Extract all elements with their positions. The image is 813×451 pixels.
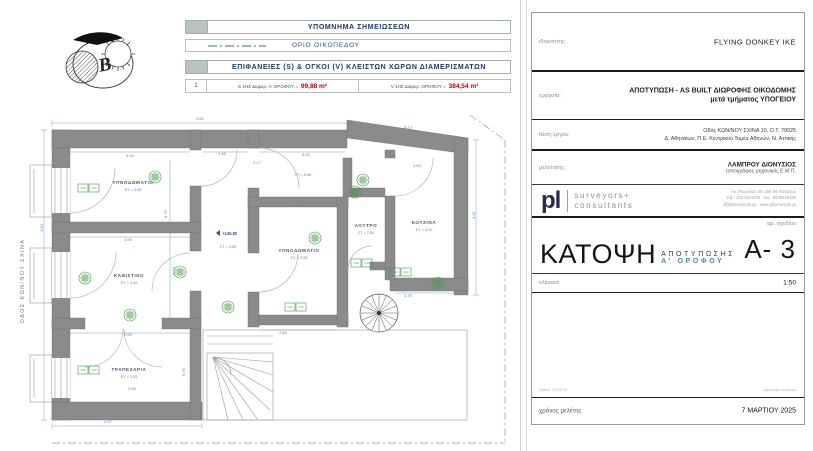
work-value: ΑΠΟΤΥΠΩΣΗ - AS BUILT ΔΙΩΡΟΦΗΣ ΟΙΚΟΔΟΜΗΣ … [629,86,796,105]
title-block-spacer [532,293,804,383]
svg-text:2.20: 2.20 [364,261,370,265]
location-label: θέση έργου: [539,132,570,138]
dimension-label: 1.40 [218,151,227,156]
level-value: +135.80 [222,231,238,236]
legend: ΥΠΟΜΝΗΜΑ ΣΗΜΕΙΩΣΕΩΝ ΟΡΙΟ ΟΙΚΟΠΕΔΟΥ ΕΠΙΦΑ… [185,20,511,93]
ref-left: Datum: ΕΓΣΑ '87 [539,388,568,392]
scale-row: κλίμακα 1:50 [532,274,804,293]
dimension-label: 2.98 [292,203,301,208]
opening-tag: 0.902.20 [78,184,99,192]
legend-notes-header: ΥΠΟΜΝΗΜΑ ΣΗΜΕΙΩΣΕΩΝ [185,20,511,34]
svg-text:2.20: 2.20 [403,270,409,274]
spiral-staircase [360,294,398,332]
designer-label: μελετητής: [539,165,566,171]
owner-value: FLYING DONKEY IKE [714,37,796,46]
dimension-label: 3.96 [128,386,137,391]
dimension-label: 3.94 [126,153,135,158]
boundary-line-sample [208,44,266,48]
location-value: Οδός ΚΩΝ/ΝΟΥ ΣΧΙΝΑ 10, Ο.Τ. 79025 Δ. Αθη… [665,126,797,142]
logo-words: surveyors+ consultants [574,191,633,211]
room-name: ΥΠΝΟΔΩΜΑΤΙΟ [278,248,319,253]
title-block: ιδιοκτήτης: FLYING DONKEY IKE εργασία: Α… [531,12,805,425]
svg-text:2.20: 2.20 [91,368,97,372]
walls [52,120,468,420]
plant-marker-icon [79,272,91,284]
windows [52,168,70,398]
plant-marker-icon [309,232,321,244]
opening-tag: 0.902.20 [351,259,372,267]
room-height: ΕΥ = 3.20 [416,228,433,232]
legend-areas-header: ΕΠΙΦΑΝΕΙΕΣ (S) & ΟΓΚΟΙ (V) ΚΛΕΙΣΤΩΝ ΧΩΡΩ… [185,60,511,74]
work-row: εργασία: ΑΠΟΤΥΠΩΣΗ - AS BUILT ΔΙΩΡΟΦΗΣ Ο… [532,72,804,120]
room-height: ΕΥ = 3.05 [121,375,138,379]
opening-tag: 0.902.20 [285,303,306,311]
legend-values-row: 1 S 1ΗΣ Διαμερ. Α' ΟΡΟΦΟΥ = 99,88 m² V 1… [185,79,511,93]
legend-color-square [186,61,208,73]
room-name: ΥΠΝΟΔΩΜΑΤΙΟ [112,180,153,185]
plant-marker-icon [222,301,234,313]
plant-marker-icon [349,186,361,198]
room-height: ΕΥ = 3.05 [121,281,138,285]
drawing-title-row: αρ. σχεδίου ΚΑΤΟΨΗ ΑΠΟΤΥΠΩΣΗΣ Α' ΟΡΟΦΟΥ … [532,218,804,274]
surface-cell: S 1ΗΣ Διαμερ. Α' ΟΡΟΦΟΥ = 99,88 m² [207,80,358,92]
volume-value: 384,54 m³ [449,83,479,90]
dimension-label: 4.41 [471,210,476,219]
work-label: εργασία: [539,93,561,99]
scale-value: 1:50 [783,280,796,287]
drawing-no-label: αρ. σχεδίου [767,221,796,227]
dimension-label: 2.90 [124,332,133,337]
dimension-label: 3.95 [124,237,133,242]
svg-text:0.90: 0.90 [80,186,86,190]
dimension-label: 2.80 [279,330,288,335]
volume-label: V 1ΗΣ Διαμερ. ΟΡΟΦΟΥ = [391,84,446,89]
drawing-sheet: 9.610.756.173.941.403.323.173.602.983.95… [0,0,813,451]
legend-boundary-row: ΟΡΙΟ ΟΙΚΟΠΕΔΟΥ [185,39,511,52]
date-label: χρόνος μελέτης [539,408,582,415]
svg-text:0.90: 0.90 [392,270,398,274]
dimension-label: 3.75 [404,293,413,298]
pl-logo: pl [541,189,560,213]
date-row: χρόνος μελέτης 7 ΜΑΡΤΙΟΥ 2025 [532,398,804,424]
dimension-label: 4.73 [171,266,176,275]
room-name: ΚΟΥΖΙΝΑ [412,220,437,225]
drawing-title: ΚΑΤΟΨΗ [540,242,656,266]
room-height: ΣΤ = 3.05 [220,245,236,249]
dimension-label: 4.97 [104,419,113,424]
plant-marker-icon [174,266,186,278]
svg-text:2.20: 2.20 [91,186,97,190]
plant-marker-icon [357,174,369,186]
legend-areas-title: ΕΠΙΦΑΝΕΙΕΣ (S) & ΟΓΚΟΙ (V) ΚΛΕΙΣΤΩΝ ΧΩΡΩ… [208,61,510,73]
drawing-subtitle: ΑΠΟΤΥΠΩΣΗΣ Α' ΟΡΟΦΟΥ [661,251,735,265]
drawing-number: A- 3 [744,234,796,265]
fold-line [520,0,521,451]
boundary-label: ΟΡΙΟ ΟΙΚΟΠΕΔΟΥ [292,42,360,49]
plant-marker-icon [149,171,161,183]
surface-label: S 1ΗΣ Διαμερ. Α' ΟΡΟΦΟΥ = [238,84,298,89]
svg-text:0.90: 0.90 [287,305,293,309]
logo-row: pl surveyors+ consultants Αν. Ρωμυλίας 2… [532,185,804,218]
dimension-labels: 9.610.756.173.941.403.323.173.602.983.95… [39,116,476,424]
room-height: ΕΥ = 3.05 [125,188,142,192]
ref-right: υψόμετρα σε μέτρα [763,388,796,392]
scale-label: κλίμακα [539,280,559,286]
location-row: θέση έργου: Οδός ΚΩΝ/ΝΟΥ ΣΧΙΝΑ 10, Ο.Τ. … [532,120,804,151]
designer-value: ΛΑΜΠΡΟΥ ΔΙΟΝΥΣΙΟΣ τοπογράφος μηχανικός Ε… [726,161,796,174]
dimension-label: 3.60 [413,163,422,168]
room-name: ΛΟΥΤΡΟ [355,223,378,228]
svg-text:0.90: 0.90 [353,261,359,265]
owner-label: ιδιοκτήτης: [539,39,566,45]
north-arrow: B [55,24,147,96]
room-height: ΣΤ = 3.50 [295,173,311,177]
legend-color-square [186,21,208,33]
designer-row: μελετητής: ΛΑΜΠΡΟΥ ΔΙΟΝΥΣΙΟΣ τοπογράφος … [532,151,804,185]
street-label: ΟΔΟΣ ΚΩΝ/ΝΟΥ ΣΧΙΝΑ [20,226,26,336]
dimension-label: 6.75 [181,367,186,376]
staircase [207,336,273,420]
dimension-label: 8.75 [163,209,168,218]
room-name: ΤΡΑΠΕΖΑΡΙΑ [111,367,146,372]
room-name: ΚΑΘΙΣΤΙΚΟ [114,273,144,278]
plant-marker-icon [432,277,444,289]
logo-address: Αν. Ρωμυλίας 29, 156 69 Παπάγου τηλ.: 21… [723,189,796,208]
owner-row: ιδιοκτήτης: FLYING DONKEY IKE [532,13,804,72]
plant-marker-icon [124,309,136,321]
legend-notes-title: ΥΠΟΜΝΗΜΑ ΣΗΜΕΙΩΣΕΩΝ [208,21,510,33]
svg-text:0.90: 0.90 [80,368,86,372]
dimension-label: 3.17 [253,160,262,165]
room-height: ΕΥ = 3.05 [291,256,308,260]
row-index: 1 [186,80,207,92]
level-marker: +135.80 [216,230,238,236]
room-height: ΣΤ = 2.50 [358,231,374,235]
dimension-label: 1.90 [39,223,44,232]
dimension-label: 3.32 [302,152,311,157]
fold-line [526,0,527,451]
date-value: 7 ΜΑΡΤΙΟΥ 2025 [741,408,796,415]
svg-text:2.20: 2.20 [298,305,304,309]
dimension-label: 9.61 [196,116,205,121]
refs-row: Datum: ΕΓΣΑ '87 υψόμετρα σε μέτρα [532,383,804,398]
logo-divider [567,190,568,212]
volume-cell: V 1ΗΣ Διαμερ. ΟΡΟΦΟΥ = 384,54 m³ [358,80,510,92]
surface-value: 99,88 m² [301,83,327,90]
